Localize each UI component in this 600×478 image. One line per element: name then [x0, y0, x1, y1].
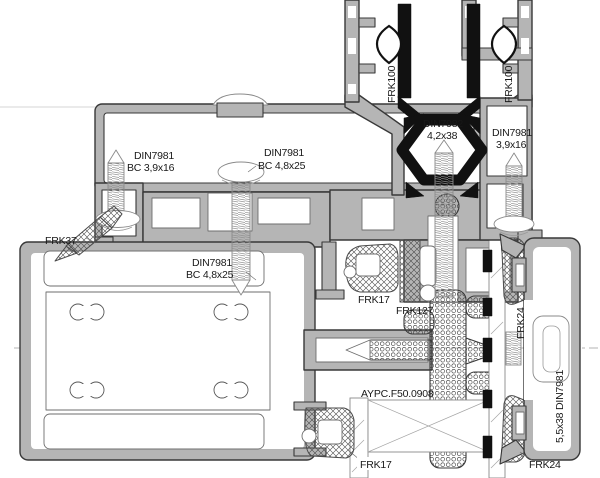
- frame-profile: [20, 242, 326, 460]
- sash-foot: [316, 290, 344, 299]
- label-frk127: FRK127: [396, 305, 434, 317]
- gasket-frk127-profile: [420, 246, 436, 286]
- clip-seat: [217, 103, 263, 117]
- label-din7981-head-right-l1: DIN7981: [264, 147, 304, 159]
- clip-opening: [152, 198, 200, 228]
- label-frk100-right: FRK100: [503, 65, 515, 103]
- spacer-bar: [368, 400, 489, 452]
- section-canvas: FRK100 FRK100 DIN7982 4,2x38 DIN7981 3,9…: [0, 0, 600, 478]
- gasket-frk17-hole: [356, 254, 380, 276]
- label-frk37: FRK37: [45, 235, 77, 247]
- clip-opening: [258, 198, 310, 224]
- gasket-frk17-hole: [318, 420, 342, 444]
- label-frk17-bottom: FRK17: [360, 459, 392, 471]
- screw-din7982-42x38: [435, 140, 453, 297]
- label-frk24-side: FRK24: [515, 307, 527, 339]
- label-din7982-l1: DIN7982: [423, 118, 463, 130]
- gasket-frk127: [400, 240, 420, 302]
- label-din7981-head-right-l2: BC 4,8x25: [258, 160, 306, 172]
- label-frk24-bottom: FRK24: [529, 459, 561, 471]
- leg-clip-arm: [359, 18, 375, 27]
- transom-opening: [362, 198, 394, 230]
- label-din7981-right-l2: 3,9x16: [496, 139, 527, 151]
- gasket-frk17-hole: [302, 429, 316, 443]
- label-frk17-mid: FRK17: [358, 294, 390, 306]
- label-din7982-l2: 4,2x38: [427, 130, 458, 142]
- label-din7981-frame-l1: DIN7981: [192, 257, 232, 269]
- gasket-frk17-hole: [344, 266, 356, 278]
- gasket-frk100-left: [377, 26, 401, 63]
- label-din7981-head-left-l1: DIN7981: [134, 150, 174, 162]
- connector-screw-shank: [368, 340, 432, 360]
- gasket-frk127-bulb: [420, 285, 436, 301]
- sash-web: [322, 242, 336, 294]
- frame-bottom-slot: [44, 414, 264, 449]
- label-frk100-left: FRK100: [386, 65, 398, 103]
- leg-clip-arm: [359, 64, 375, 73]
- label-din7981-bead: 5,5x38 DIN7981: [554, 370, 566, 443]
- cad-section-drawing: FRK100 FRK100 DIN7982 4,2x38 DIN7981 3,9…: [0, 0, 600, 478]
- label-aypc: AYPC.F50.0908: [361, 388, 434, 400]
- label-din7981-frame-l2: BC 4,8x25: [186, 269, 234, 281]
- label-din7981-head-left-l2: BC 3,9x16: [127, 162, 175, 174]
- label-din7981-right-l1: DIN7981: [492, 127, 532, 139]
